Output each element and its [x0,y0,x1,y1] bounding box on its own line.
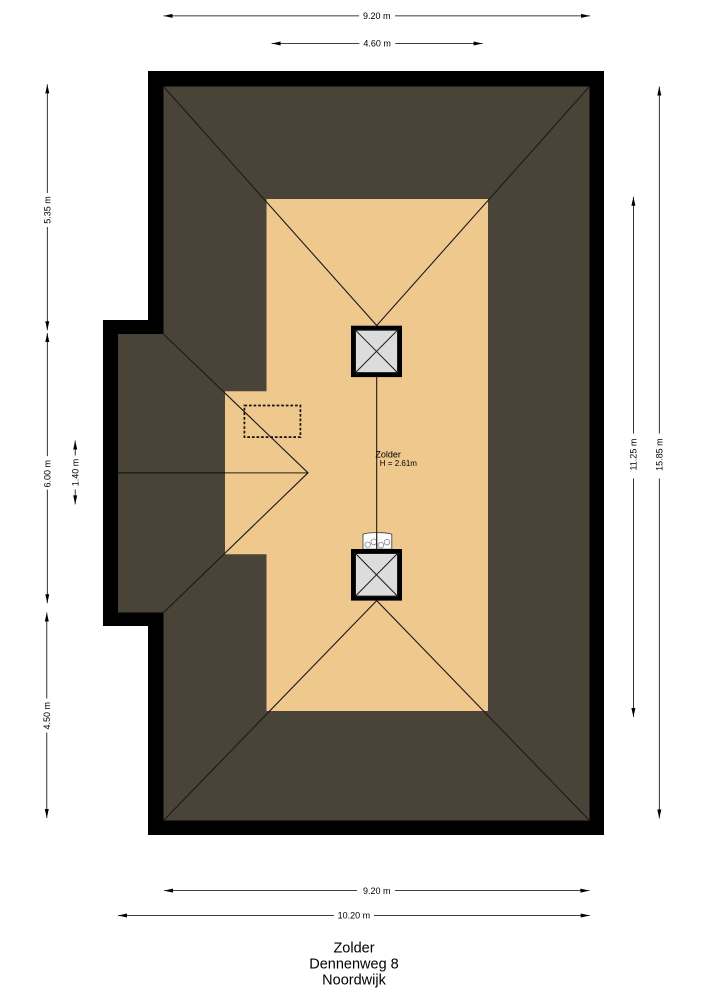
svg-text:1.40 m: 1.40 m [70,459,80,487]
svg-text:Zolder: Zolder [333,941,374,957]
svg-text:Dennenweg 8: Dennenweg 8 [309,956,399,972]
svg-text:6.00 m: 6.00 m [42,460,52,488]
svg-text:11.25 m: 11.25 m [629,439,639,471]
svg-text:9.20 m: 9.20 m [363,886,391,896]
svg-text:9.20 m: 9.20 m [363,11,391,21]
svg-text:15.85 m: 15.85 m [655,438,665,471]
svg-text:5.35 m: 5.35 m [42,196,52,224]
svg-text:Zolder: Zolder [375,449,401,459]
svg-text:Noordwijk: Noordwijk [322,972,386,988]
svg-text:4.50 m: 4.50 m [42,702,52,730]
svg-text:10.20 m: 10.20 m [338,911,371,921]
svg-text:4.60 m: 4.60 m [363,39,391,49]
svg-text:H = 2.61m: H = 2.61m [380,459,417,468]
